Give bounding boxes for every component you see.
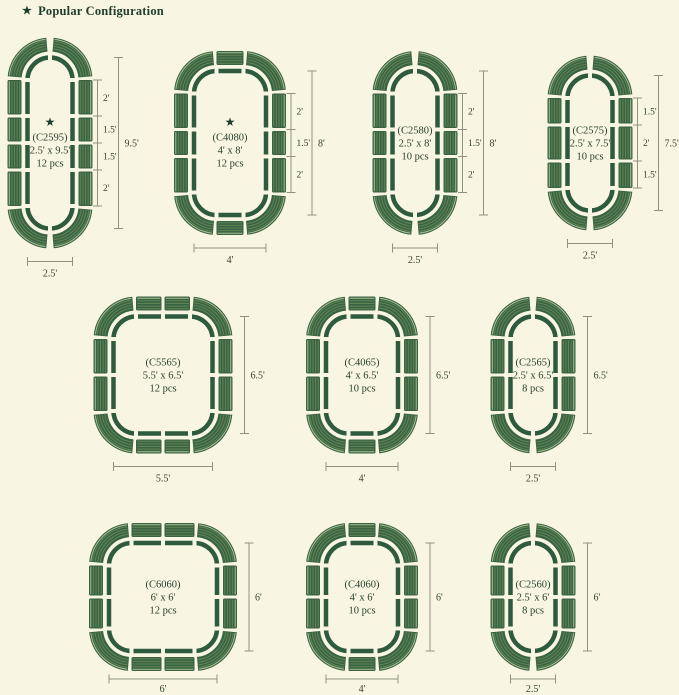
config-c4080: 2'1.5'2'8'4'★(C4080)4' x 8'12 pcs [174, 51, 325, 266]
overall-height-label: 7.5' [665, 139, 679, 150]
config-size-label: 5.5' x 6.5' [143, 371, 184, 382]
config-code-label: (C4060) [345, 580, 381, 591]
config-size-label: 2.5' x 6.5' [513, 371, 554, 382]
overall-height-dimension: 6.5' [240, 317, 265, 434]
popular-star-icon: ★ [45, 115, 56, 129]
overall-width-label: 2.5' [408, 255, 423, 266]
overall-height-dimension: 6' [583, 543, 601, 651]
overall-height-label: 6.5' [594, 371, 609, 382]
overall-width-label: 6' [160, 684, 167, 695]
dimensions: 6.5'4' [326, 317, 451, 485]
config-labels: (C2575)2.5' x 7.5'10 pcs [570, 126, 611, 163]
segment-dim-label: 1.5' [103, 126, 117, 136]
segment-dimension-line: 1.5'2'1.5' [633, 98, 657, 188]
config-c2595: 2'1.5'1.5'2'9.5'2.5'★(C2595)2.5' x 9.5'1… [8, 38, 140, 280]
segment-dim-label: 2' [103, 94, 110, 104]
config-c2575: 1.5'2'1.5'7.5'2.5'(C2575)2.5' x 7.5'10 p… [548, 56, 679, 262]
config-code-label: (C2565) [516, 358, 552, 369]
overall-height-label: 9.5' [125, 139, 140, 150]
segment-dim-label: 2' [468, 108, 475, 118]
config-pcs-label: 10 pcs [348, 384, 375, 395]
dimensions: 6.5'2.5' [511, 317, 609, 485]
config-c2565: 6.5'2.5'(C2565)2.5' x 6.5'8 pcs [491, 297, 609, 485]
config-c2580: 2'1.5'2'8'2.5'(C2580)2.5' x 8'10 pcs [373, 51, 497, 266]
config-code-label: (C4065) [345, 358, 381, 369]
config-c4060: 6'4'(C4060)4' x 6'10 pcs [306, 523, 443, 695]
config-pcs-label: 10 pcs [401, 152, 428, 163]
config-size-label: 4' x 6' [350, 593, 375, 604]
segment-dimension-line: 2'1.5'1.5'2' [93, 80, 117, 206]
overall-height-dimension: 7.5' [654, 76, 679, 211]
segment-dim-label: 1.5' [103, 153, 117, 163]
overall-width-label: 2.5' [526, 474, 541, 485]
popular-star-icon: ★ [225, 115, 236, 129]
dimensions: 2'1.5'2'8'4' [194, 71, 325, 266]
config-code-label: (C2595) [33, 133, 69, 144]
config-labels: (C2565)2.5' x 6.5'8 pcs [513, 358, 554, 395]
config-code-label: (C5565) [146, 358, 182, 369]
overall-height-label: 6' [255, 593, 262, 604]
dimensions: 6'6' [109, 543, 262, 695]
overall-height-dimension: 9.5' [114, 58, 139, 229]
config-labels: (C5565)5.5' x 6.5'12 pcs [143, 358, 184, 395]
config-code-label: (C2580) [398, 126, 434, 137]
overall-height-label: 8' [490, 139, 497, 150]
overall-width-dimension: 2.5' [511, 675, 556, 695]
overall-height-dimension: 6' [245, 543, 263, 651]
config-size-label: 4' x 6.5' [346, 371, 379, 382]
overall-height-label: 6.5' [436, 371, 451, 382]
config-size-label: 2.5' x 9.5' [30, 146, 71, 157]
config-labels: (C6060)6' x 6'12 pcs [146, 580, 182, 617]
segment-dimension-line: 2'1.5'2' [287, 94, 311, 193]
config-pcs-label: 8 pcs [522, 606, 544, 617]
overall-width-dimension: 4' [326, 462, 398, 485]
segment-dim-label: 2' [468, 171, 475, 181]
config-size-label: 2.5' x 8' [399, 139, 432, 150]
overall-width-label: 2.5' [583, 251, 598, 262]
overall-width-label: 4' [359, 684, 366, 695]
dimensions: 6'4' [326, 543, 443, 695]
config-c5565: 6.5'5.5'(C5565)5.5' x 6.5'12 pcs [94, 297, 266, 485]
config-labels: (C4065)4' x 6.5'10 pcs [345, 358, 381, 395]
overall-height-label: 6' [594, 593, 601, 604]
overall-height-dimension: 6' [426, 543, 444, 651]
dimensions: 6.5'5.5' [114, 317, 266, 485]
overall-width-label: 2.5' [526, 684, 541, 695]
overall-height-label: 6.5' [251, 371, 266, 382]
config-code-label: (C4080) [213, 133, 249, 144]
config-c2560: 6'2.5'(C2560)2.5' x 6'8 pcs [491, 523, 601, 695]
config-size-label: 6' x 6' [151, 593, 176, 604]
config-c6060: 6'6'(C6060)6' x 6'12 pcs [89, 523, 262, 695]
config-labels: ★(C4080)4' x 8'12 pcs [213, 115, 249, 170]
overall-height-dimension: 8' [308, 71, 326, 215]
config-c4065: 6.5'4'(C4065)4' x 6.5'10 pcs [306, 297, 451, 485]
segment-dimension-line: 2'1.5'2' [458, 94, 482, 193]
overall-width-dimension: 4' [326, 675, 398, 695]
segment-dim-label: 1.5' [643, 108, 657, 118]
config-size-label: 2.5' x 6' [517, 593, 550, 604]
overall-height-label: 8' [318, 139, 325, 150]
overall-width-dimension: 2.5' [568, 239, 613, 262]
config-pcs-label: 12 pcs [149, 384, 176, 395]
overall-height-dimension: 6.5' [426, 317, 451, 434]
overall-width-dimension: 6' [109, 675, 217, 695]
config-size-label: 4' x 8' [218, 146, 243, 157]
overall-width-label: 4' [227, 255, 234, 266]
segment-dim-label: 2' [103, 184, 110, 194]
config-labels: (C2580)2.5' x 8'10 pcs [398, 126, 434, 163]
overall-width-dimension: 4' [194, 244, 266, 267]
overall-width-dimension: 5.5' [114, 462, 213, 485]
bed-configurations-diagram: 2'1.5'1.5'2'9.5'2.5'★(C2595)2.5' x 9.5'1… [0, 0, 679, 695]
config-code-label: (C2560) [516, 580, 552, 591]
config-code-label: (C2575) [573, 126, 609, 137]
overall-height-dimension: 6.5' [583, 317, 608, 434]
config-pcs-label: 12 pcs [36, 159, 63, 170]
config-pcs-label: 10 pcs [576, 152, 603, 163]
overall-height-label: 6' [436, 593, 443, 604]
overall-height-dimension: 8' [479, 71, 497, 215]
segment-dim-label: 2' [297, 108, 304, 118]
overall-width-label: 2.5' [43, 269, 58, 280]
config-labels: ★(C2595)2.5' x 9.5'12 pcs [30, 115, 71, 170]
config-pcs-label: 10 pcs [348, 606, 375, 617]
segment-dim-label: 1.5' [643, 171, 657, 181]
config-code-label: (C6060) [146, 580, 182, 591]
segment-dim-label: 2' [643, 139, 650, 149]
config-pcs-label: 12 pcs [149, 606, 176, 617]
segment-dim-label: 2' [297, 171, 304, 181]
config-labels: (C2560)2.5' x 6'8 pcs [516, 580, 552, 617]
segment-dim-label: 1.5' [297, 139, 311, 149]
config-pcs-label: 12 pcs [216, 159, 243, 170]
config-size-label: 2.5' x 7.5' [570, 139, 611, 150]
popular-configuration-sheet: ★ Popular Configuration 2'1.5'1.5'2'9.5'… [0, 0, 679, 695]
overall-width-label: 4' [359, 474, 366, 485]
config-labels: (C4060)4' x 6'10 pcs [345, 580, 381, 617]
overall-width-dimension: 2.5' [28, 257, 73, 280]
config-pcs-label: 8 pcs [522, 384, 544, 395]
overall-width-dimension: 2.5' [393, 244, 438, 267]
segment-dim-label: 1.5' [468, 139, 482, 149]
overall-width-label: 5.5' [156, 474, 171, 485]
overall-width-dimension: 2.5' [511, 462, 556, 485]
